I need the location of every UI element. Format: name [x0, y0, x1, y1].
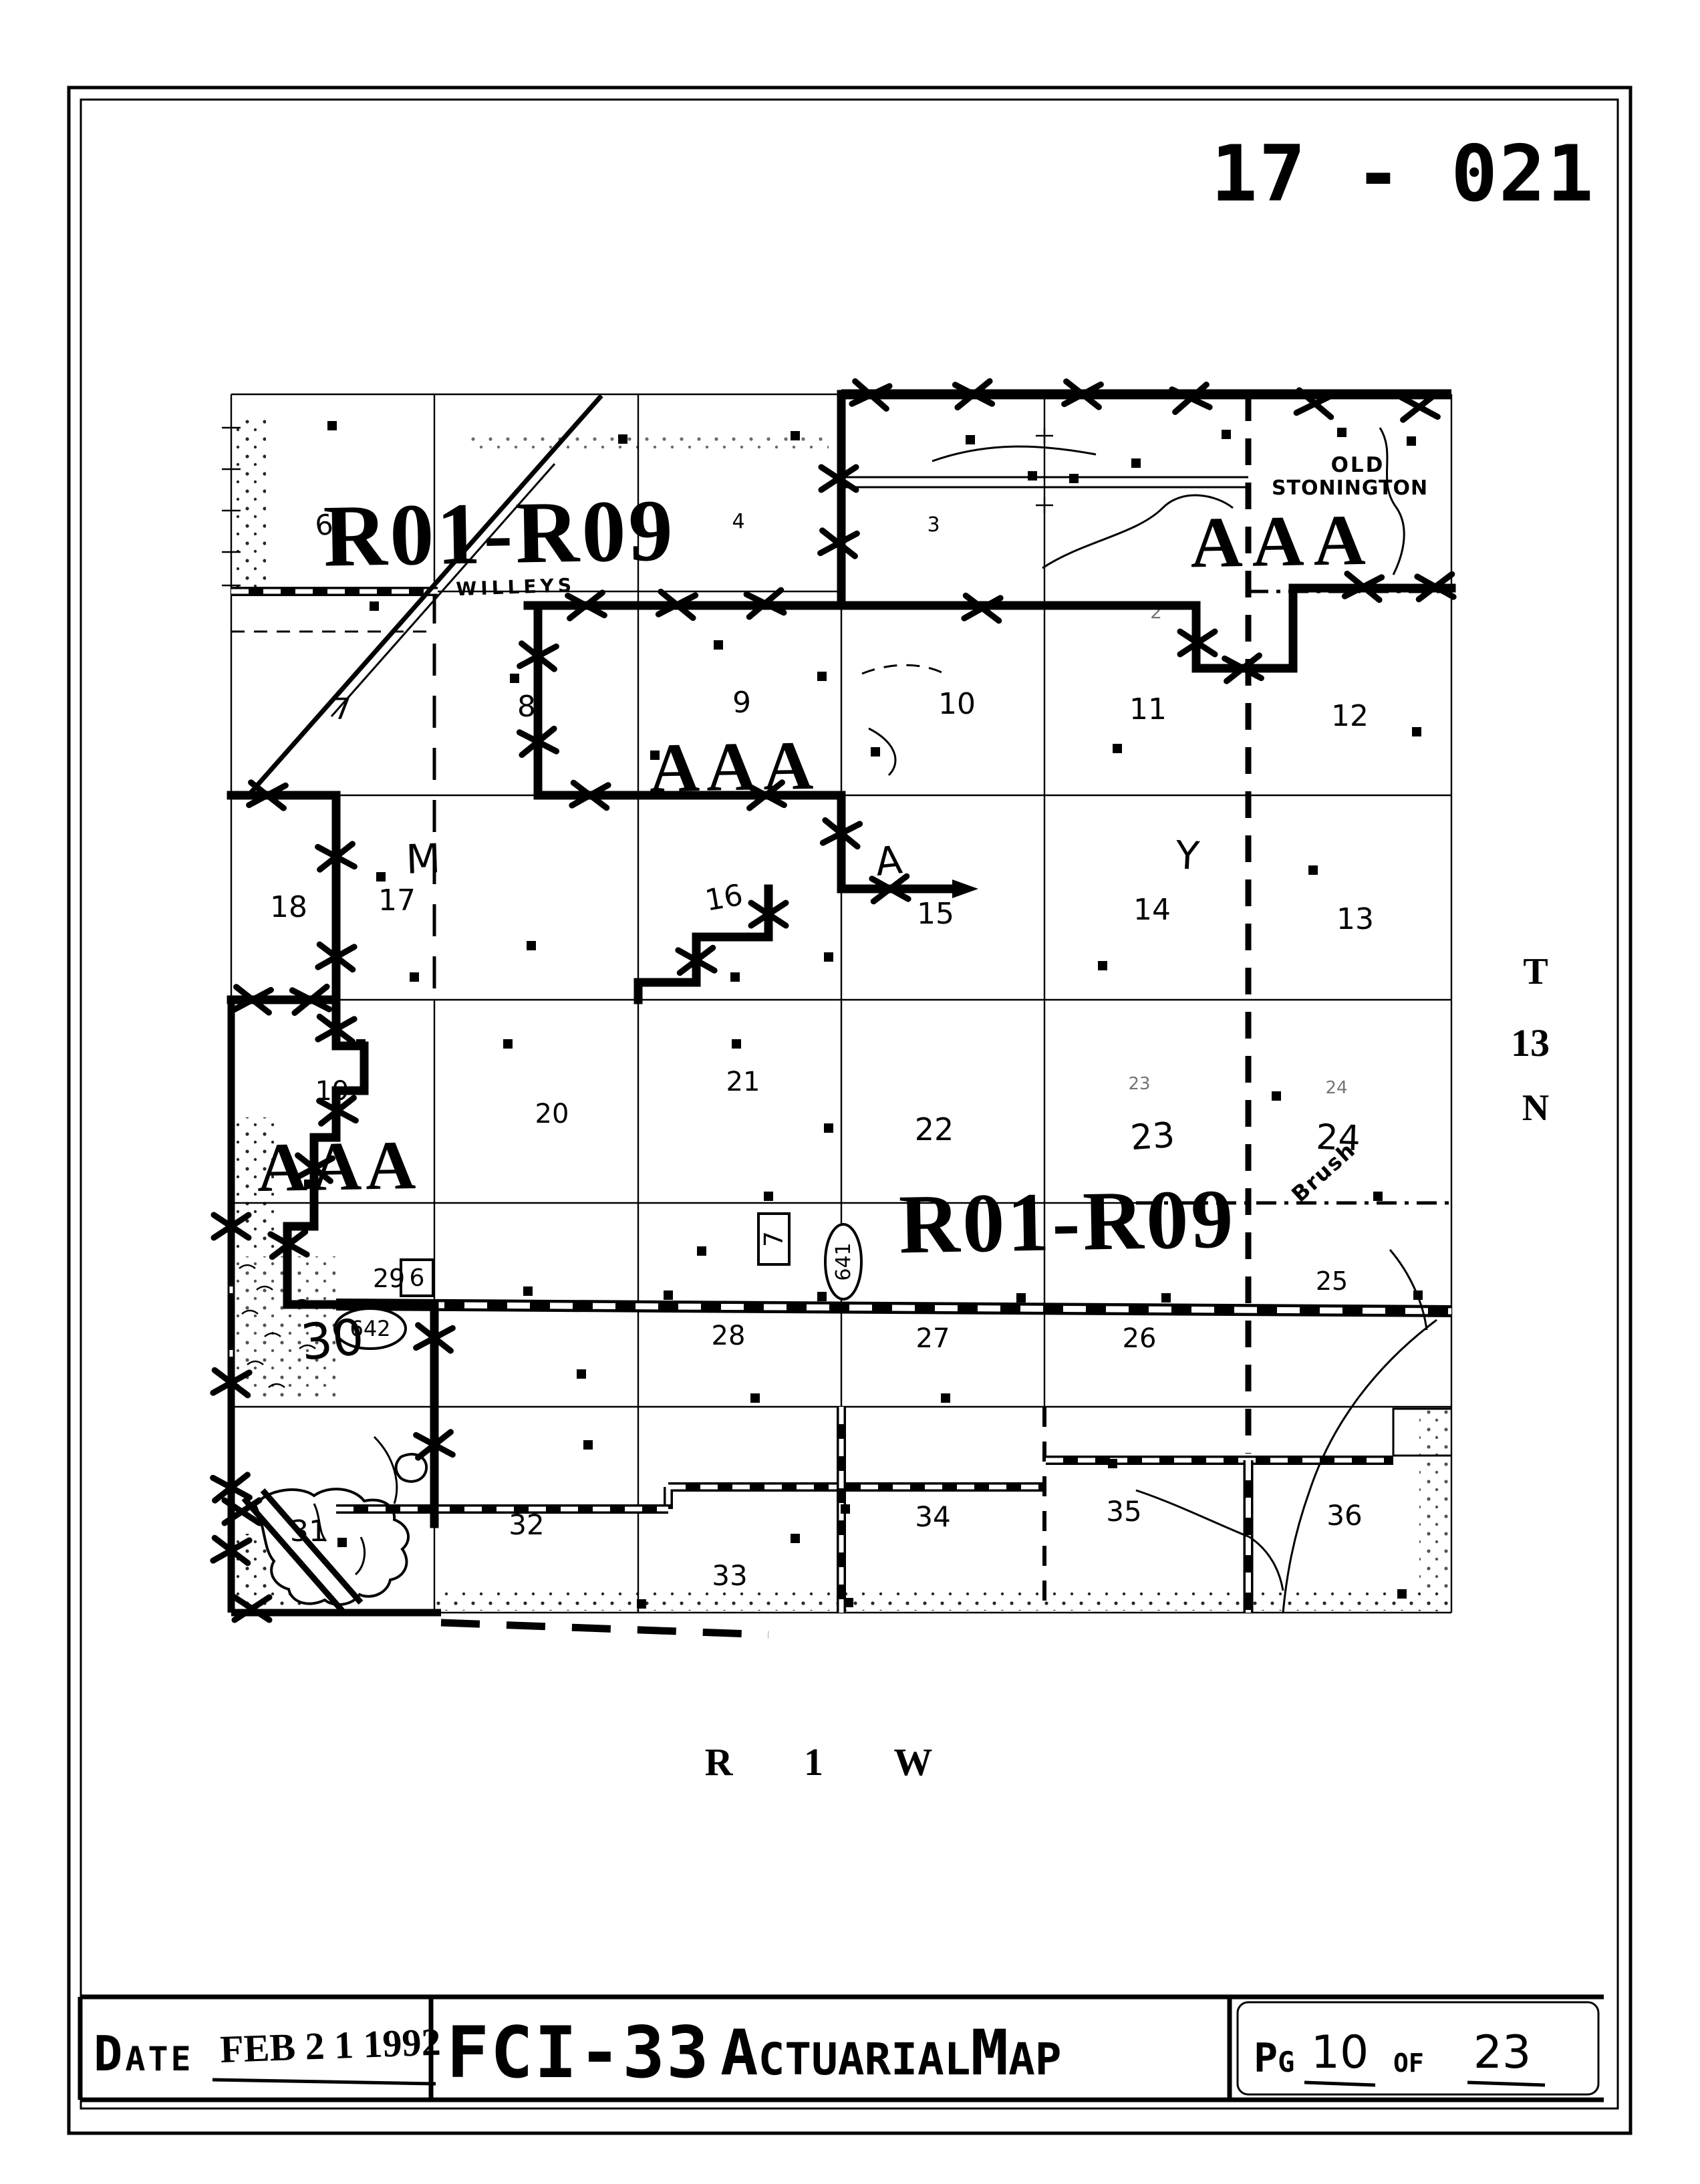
farmstead-square: [966, 435, 975, 444]
section-number-25: 25: [1316, 1266, 1348, 1296]
section-number-30: 30: [298, 1308, 367, 1371]
farmstead-square: [844, 1598, 853, 1607]
page-label: Pg: [1254, 2035, 1294, 2082]
farmstead-square: [664, 1290, 673, 1300]
farmstead-square: [1373, 1192, 1383, 1201]
farmstead-square: [1412, 727, 1421, 736]
farmstead-square: [1413, 1290, 1423, 1300]
farmstead-square: [764, 1192, 773, 1201]
date-underline: [212, 2080, 436, 2084]
rate-area-aaa-center: AAA: [649, 727, 821, 807]
farmstead-square: [697, 1246, 706, 1256]
township-n: N: [1522, 1087, 1549, 1129]
section-number-22: 22: [915, 1111, 954, 1147]
farmstead-square: [577, 1369, 586, 1379]
farmstead-square: [730, 972, 740, 982]
farmstead-square: [1069, 474, 1079, 483]
farmstead-square: [637, 1599, 646, 1609]
farmstead-square: [1161, 1293, 1171, 1303]
map-id: 17 - 021: [1211, 129, 1595, 219]
farmstead-square: [356, 1039, 366, 1049]
farmstead-square: [817, 672, 827, 681]
farmstead-square: [583, 1440, 593, 1450]
form-name: ActuarialMap: [720, 2017, 1062, 2090]
section-number-35: 35: [1106, 1495, 1141, 1528]
section-number-3: 3: [927, 513, 940, 537]
section-number-32: 32: [509, 1508, 544, 1541]
farmstead-square: [817, 1292, 827, 1301]
section-number-14: 14: [1133, 893, 1171, 927]
section-number-4: 4: [732, 510, 744, 533]
date-label: Date: [94, 2026, 194, 2082]
road-marker-number: 7: [759, 1231, 789, 1247]
road-marker-number: 641: [832, 1242, 855, 1280]
section-number-23: 23: [1128, 1074, 1150, 1094]
farmstead-square: [1337, 428, 1347, 437]
township-13: 13: [1511, 1021, 1550, 1065]
farmstead-square: [510, 674, 519, 683]
farmstead-square: [503, 1039, 513, 1049]
farmstead-square: [824, 1123, 833, 1133]
section-number-27: 27: [916, 1323, 950, 1354]
farmstead-square: [1131, 458, 1141, 468]
farmstead-square: [941, 1393, 950, 1403]
rate-area-aaa-northeast: AAA: [1189, 501, 1375, 583]
farmstead-square: [750, 1393, 760, 1403]
farmstead-square: [791, 431, 800, 440]
farmstead-square: [410, 972, 419, 982]
section-number-2: 2: [1150, 601, 1162, 623]
road-marker-6: 6: [401, 1260, 433, 1296]
farmstead-square: [618, 434, 627, 444]
farmstead-square: [791, 1534, 800, 1543]
of-label: of: [1393, 2038, 1424, 2080]
section-number-13: 13: [1336, 902, 1374, 936]
section-number-36: 36: [1326, 1499, 1362, 1532]
section-number-12: 12: [1331, 699, 1369, 733]
page-total: 23: [1473, 2026, 1532, 2079]
farmstead-square: [714, 640, 723, 650]
page-number: 10: [1311, 2026, 1369, 2079]
zone-letter-M: M: [405, 835, 441, 883]
section-number-28: 28: [712, 1321, 746, 1351]
boundary-arrow: [952, 879, 978, 898]
farmstead-square: [1028, 471, 1037, 481]
old-stonington-line2: STONINGTON: [1272, 476, 1428, 500]
township-t: T: [1523, 951, 1548, 992]
section-number-16: 16: [702, 878, 745, 918]
section-number-18: 18: [270, 890, 307, 924]
section-number-26: 26: [1123, 1323, 1157, 1354]
farmstead-square: [327, 421, 337, 430]
farmstead-square: [527, 941, 536, 950]
page-number-underline: [1304, 2082, 1375, 2085]
section-number-15: 15: [917, 897, 954, 931]
farmstead-square: [337, 1538, 347, 1547]
farmstead-square: [871, 747, 880, 757]
map-canvas: 17 - 021: [0, 0, 1700, 2184]
zone-letter-Y: Y: [1174, 832, 1201, 879]
section-number-21: 21: [726, 1067, 760, 1097]
road-marker-number: 6: [410, 1264, 425, 1292]
section-number-9: 9: [732, 686, 751, 720]
farmstead-square: [1272, 1091, 1281, 1101]
farmstead-square: [523, 1286, 533, 1296]
road-markers: 67641642: [335, 1214, 861, 1349]
section-number-20: 20: [535, 1099, 569, 1129]
township-label: T 13 N: [1511, 951, 1550, 1129]
section-number-31: 31: [290, 1514, 327, 1548]
farmstead-square: [370, 601, 379, 611]
rate-area-r01-r09-north: R01-R09: [323, 481, 676, 585]
section-number-24: 24: [1325, 1078, 1347, 1098]
section-number-34: 34: [915, 1500, 950, 1533]
farmstead-square: [841, 1504, 850, 1514]
rate-area-aaa-west: AAA: [257, 1127, 420, 1206]
farmstead-square: [1098, 961, 1107, 970]
section-number-8: 8: [517, 690, 536, 724]
scanned-actuarial-map-page: 17 - 021: [0, 0, 1700, 2184]
date-stamp: FEB 2 1 1992: [219, 2020, 441, 2071]
farmstead-square: [1407, 436, 1416, 446]
section-number-29: 29: [373, 1264, 405, 1293]
range-label: R 1 W: [705, 1740, 964, 1784]
farmstead-square: [376, 872, 386, 881]
farmstead-square: [824, 952, 833, 962]
farmstead-square: [1108, 1459, 1117, 1468]
road-marker-7: 7: [758, 1214, 789, 1264]
footer-bar: Date FEB 2 1 1992 FCI-33 ActuarialMap Pg…: [80, 1997, 1604, 2100]
section-number-17: 17: [378, 883, 416, 918]
farmstead-square: [1016, 1293, 1026, 1303]
section-number-10: 10: [938, 687, 976, 721]
rate-area-r01-r09-south: R01-R09: [898, 1173, 1236, 1272]
section-number-7: 7: [333, 692, 351, 726]
road-marker-641: 641: [825, 1224, 861, 1299]
section-number-19: 19: [315, 1076, 349, 1107]
section-number-11: 11: [1129, 692, 1167, 726]
zone-letter-A: A: [873, 837, 905, 885]
farmstead-square: [1113, 744, 1122, 753]
farmstead-square: [732, 1039, 741, 1049]
farmstead-square: [1397, 1589, 1407, 1599]
form-code: FCI-33: [446, 2012, 710, 2094]
farmstead-square: [1308, 865, 1318, 875]
farmstead-square: [1222, 430, 1231, 439]
zone-letters: MAY: [405, 832, 1201, 885]
old-stonington-line1: OLD: [1331, 453, 1385, 477]
section-number-33: 33: [712, 1559, 747, 1592]
page-total-underline: [1467, 2082, 1545, 2085]
section-number-23: 23: [1129, 1115, 1176, 1158]
